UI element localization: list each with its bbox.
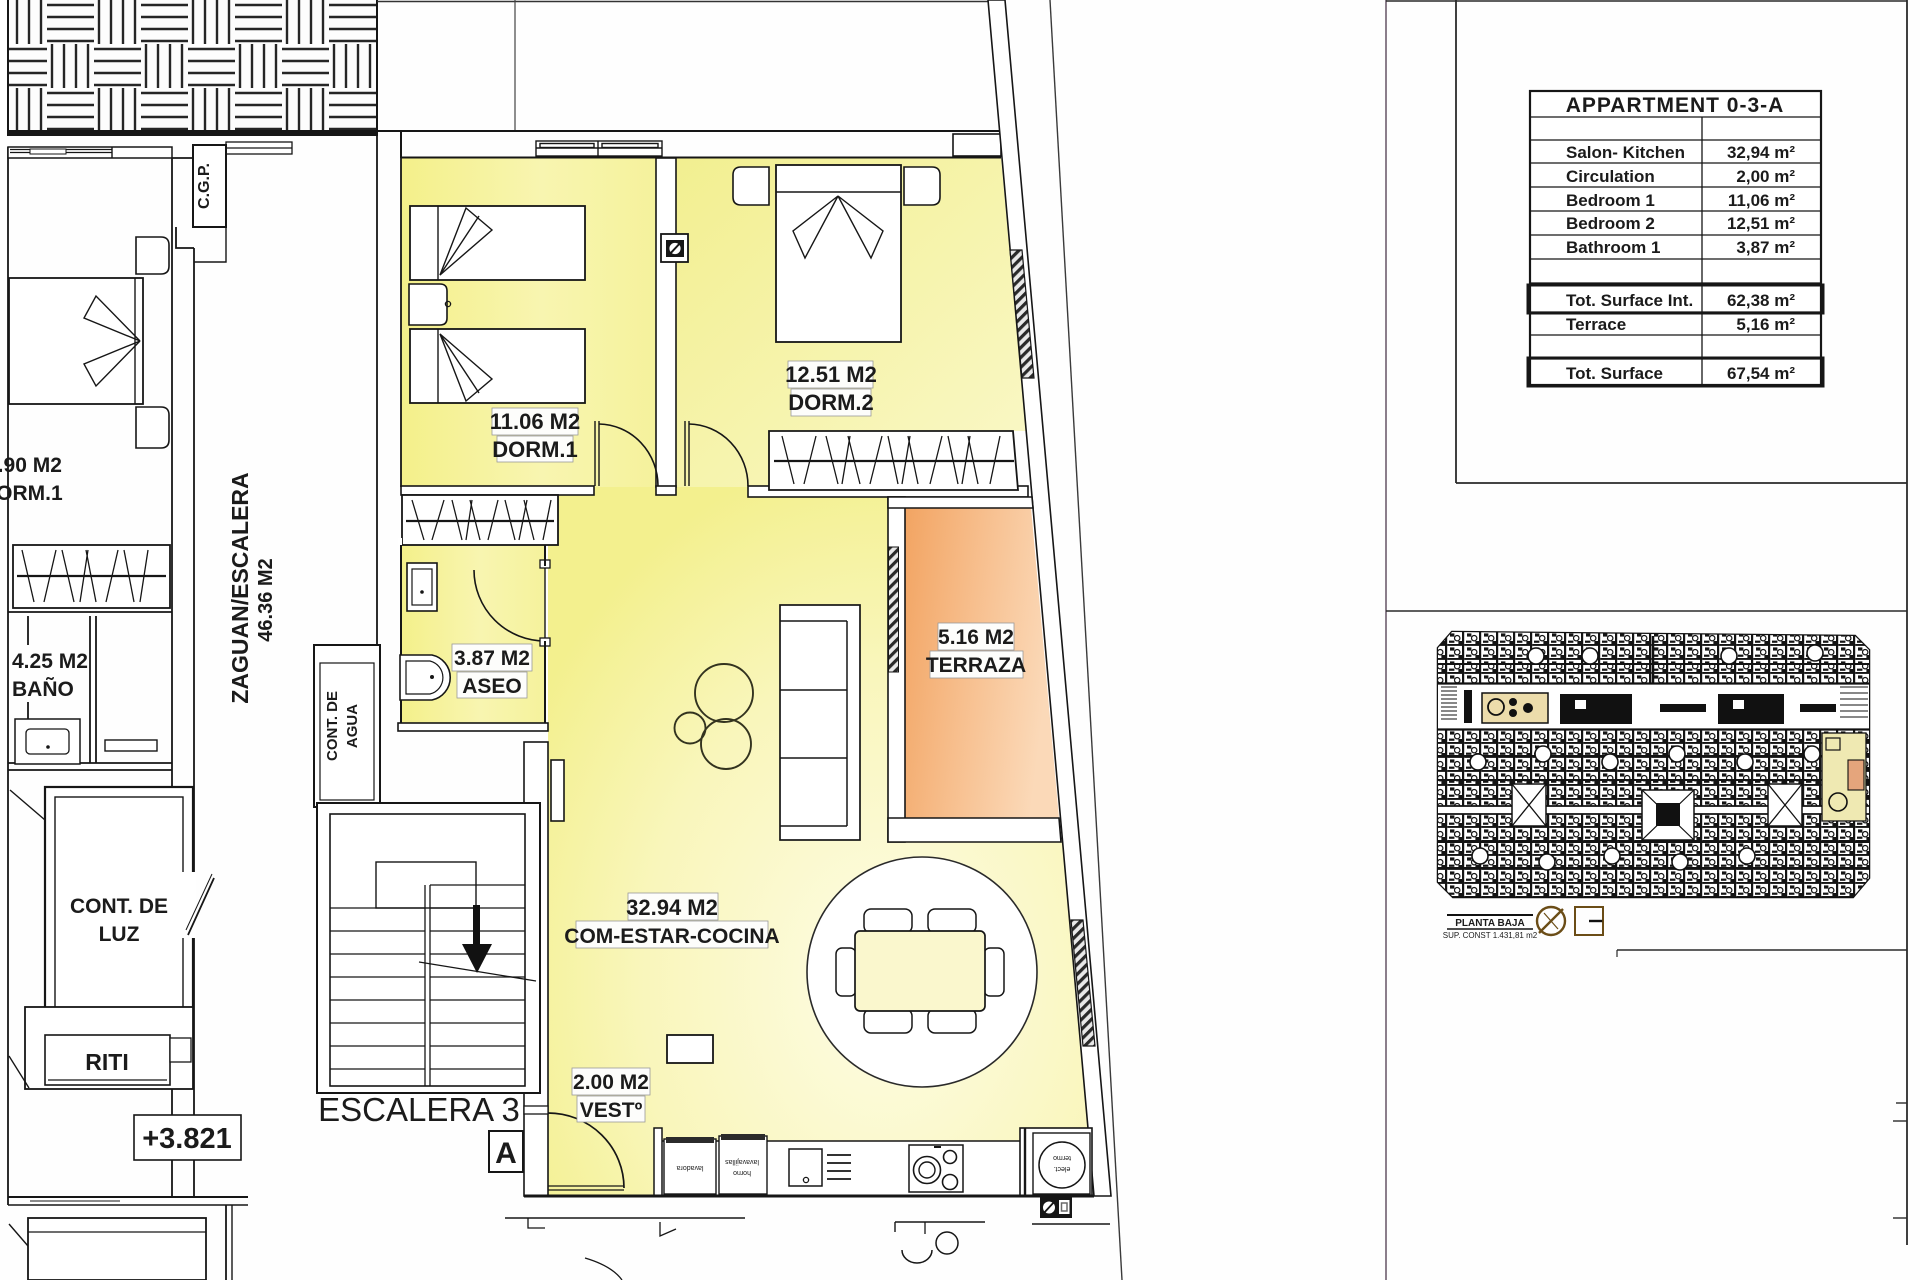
svg-text:2,00 m²: 2,00 m² bbox=[1736, 167, 1795, 186]
svg-text:LUZ: LUZ bbox=[99, 923, 140, 946]
svg-text:2.00 M2: 2.00 M2 bbox=[573, 1071, 649, 1094]
svg-text:PLANTA BAJA: PLANTA BAJA bbox=[1455, 918, 1524, 929]
svg-text:RITI: RITI bbox=[85, 1049, 128, 1075]
svg-text:11.06 M2: 11.06 M2 bbox=[490, 409, 581, 434]
svg-text:Terrace: Terrace bbox=[1566, 315, 1626, 334]
svg-text:DORM.2: DORM.2 bbox=[788, 390, 874, 415]
svg-text:COM-ESTAR-COCINA: COM-ESTAR-COCINA bbox=[564, 925, 779, 948]
svg-text:12,51 m²: 12,51 m² bbox=[1727, 214, 1795, 233]
svg-text:Tot. Surface Int.: Tot. Surface Int. bbox=[1566, 291, 1693, 310]
svg-text:Bedroom 1: Bedroom 1 bbox=[1566, 191, 1655, 210]
svg-text:3.87 M2: 3.87 M2 bbox=[454, 647, 530, 670]
svg-text:ASEO: ASEO bbox=[462, 675, 522, 698]
svg-text:AGUA: AGUA bbox=[344, 704, 361, 748]
svg-text:Tot. Surface: Tot. Surface bbox=[1566, 364, 1663, 383]
svg-text:termo: termo bbox=[1053, 1154, 1071, 1161]
svg-text:ZAGUAN/ESCALERA: ZAGUAN/ESCALERA bbox=[227, 472, 253, 703]
svg-text:lavavajillas: lavavajillas bbox=[725, 1158, 759, 1165]
svg-text:SUP. CONST 1.431,81 m2: SUP. CONST 1.431,81 m2 bbox=[1443, 931, 1538, 940]
svg-text:DORM.1: DORM.1 bbox=[0, 482, 63, 505]
svg-text:32,94 m²: 32,94 m² bbox=[1727, 143, 1795, 162]
svg-text:DORM.1: DORM.1 bbox=[492, 437, 578, 462]
svg-text:CONT. DE: CONT. DE bbox=[70, 895, 168, 918]
svg-text:A: A bbox=[495, 1137, 517, 1170]
svg-text:Bathroom 1: Bathroom 1 bbox=[1566, 238, 1660, 257]
svg-text:horno: horno bbox=[733, 1169, 751, 1176]
svg-text:4.25 M2: 4.25 M2 bbox=[12, 650, 88, 673]
svg-text:lavadora: lavadora bbox=[676, 1164, 703, 1171]
svg-text:CONT. DE: CONT. DE bbox=[324, 691, 341, 761]
svg-text:5.16 M2: 5.16 M2 bbox=[938, 626, 1014, 649]
svg-text:3,87 m²: 3,87 m² bbox=[1736, 238, 1795, 257]
svg-text:ESCALERA 3: ESCALERA 3 bbox=[318, 1091, 520, 1128]
svg-text:Circulation: Circulation bbox=[1566, 167, 1655, 186]
svg-text:VESTº: VESTº bbox=[580, 1099, 643, 1122]
svg-text:Bedroom 2: Bedroom 2 bbox=[1566, 214, 1655, 233]
svg-text:APPARTMENT 0-3-A: APPARTMENT 0-3-A bbox=[1566, 94, 1785, 117]
svg-text:TERRAZA: TERRAZA bbox=[926, 654, 1026, 677]
svg-text:62,38 m²: 62,38 m² bbox=[1727, 291, 1795, 310]
svg-text:BAÑO: BAÑO bbox=[12, 678, 74, 701]
svg-text:C.G.P.: C.G.P. bbox=[196, 163, 213, 209]
svg-text:+3.821: +3.821 bbox=[142, 1123, 232, 1155]
svg-text:12.51 M2: 12.51 M2 bbox=[785, 362, 877, 387]
svg-text:11,06 m²: 11,06 m² bbox=[1728, 191, 1795, 210]
svg-text:5,16 m²: 5,16 m² bbox=[1736, 315, 1795, 334]
svg-text:elect.: elect. bbox=[1054, 1165, 1071, 1172]
svg-text:46.36 M2: 46.36 M2 bbox=[255, 558, 277, 641]
svg-text:Salon- Kitchen: Salon- Kitchen bbox=[1566, 143, 1685, 162]
svg-text:32.94 M2: 32.94 M2 bbox=[626, 895, 718, 920]
svg-text:4.90 M2: 4.90 M2 bbox=[0, 454, 62, 477]
svg-text:67,54 m²: 67,54 m² bbox=[1727, 364, 1795, 383]
